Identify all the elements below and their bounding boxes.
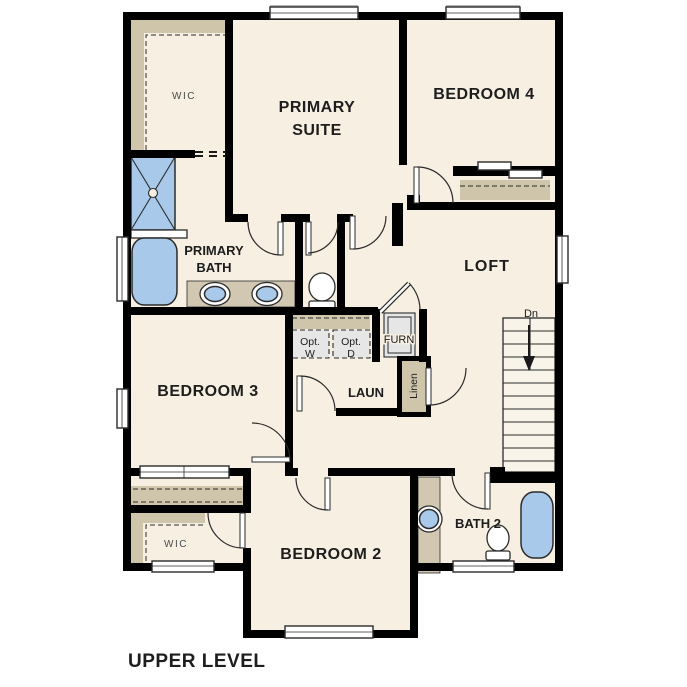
door-icon <box>297 376 302 411</box>
bedroom2-wic-label: WIC <box>164 539 188 550</box>
door-icon <box>306 222 311 255</box>
shower-deck <box>131 230 187 238</box>
bedroom4-closet-shelf <box>460 180 550 200</box>
door-icon <box>240 513 245 548</box>
hall-closet-shelf <box>131 486 243 505</box>
door-icon <box>278 222 283 255</box>
window-icon <box>152 561 214 572</box>
linen-label: Linen <box>408 373 420 399</box>
laundry-label: LAUN <box>348 385 384 400</box>
svg-text:SUITE: SUITE <box>292 122 342 139</box>
door-icon <box>325 478 330 510</box>
window-icon <box>557 236 568 283</box>
door-icon <box>485 473 490 509</box>
door-icon <box>252 457 290 462</box>
door-icon <box>350 216 355 249</box>
door-icon <box>414 167 419 203</box>
floor-plan-page: WIC PRIMARY SUITE BEDROOM 4 PRIMARY BATH… <box>0 0 687 687</box>
plan-caption: UPPER LEVEL <box>128 651 265 672</box>
loft-label: LOFT <box>464 258 510 275</box>
opt-washer-label: Opt. <box>300 336 320 348</box>
primary-wic-shelf <box>131 20 225 33</box>
svg-text:D: D <box>347 348 355 360</box>
bedroom2-label: BEDROOM 2 <box>280 546 381 563</box>
window-icon <box>117 237 128 301</box>
toilet-icon <box>309 273 335 301</box>
primary-suite-label: PRIMARY <box>279 99 356 116</box>
primary-bath-label: PRIMARY <box>184 243 244 258</box>
floor-plan-drawing: WIC PRIMARY SUITE BEDROOM 4 PRIMARY BATH… <box>0 0 687 687</box>
laundry-shelf <box>292 313 370 329</box>
bath2-label: BATH 2 <box>455 516 501 531</box>
bedroom4-label: BEDROOM 4 <box>433 86 534 103</box>
bathtub-icon <box>521 492 553 558</box>
sliding-door-icon <box>478 162 511 170</box>
opt-dryer-label: Opt. <box>341 336 361 348</box>
door-icon <box>426 368 431 405</box>
furnace-label: FURN <box>384 334 415 346</box>
window-icon <box>117 389 128 428</box>
svg-text:W: W <box>305 348 315 360</box>
svg-text:BATH: BATH <box>196 260 231 275</box>
staircase <box>503 318 555 472</box>
bedroom2-wic-shelf <box>131 513 143 563</box>
window-icon <box>453 561 514 572</box>
bathtub-icon <box>132 238 177 305</box>
sliding-door-icon <box>509 170 542 178</box>
bedroom3-label: BEDROOM 3 <box>157 383 258 400</box>
primary-wic-label: WIC <box>172 91 196 102</box>
stairs-down-label: Dn <box>524 308 538 320</box>
shower-drain-icon <box>149 189 158 198</box>
